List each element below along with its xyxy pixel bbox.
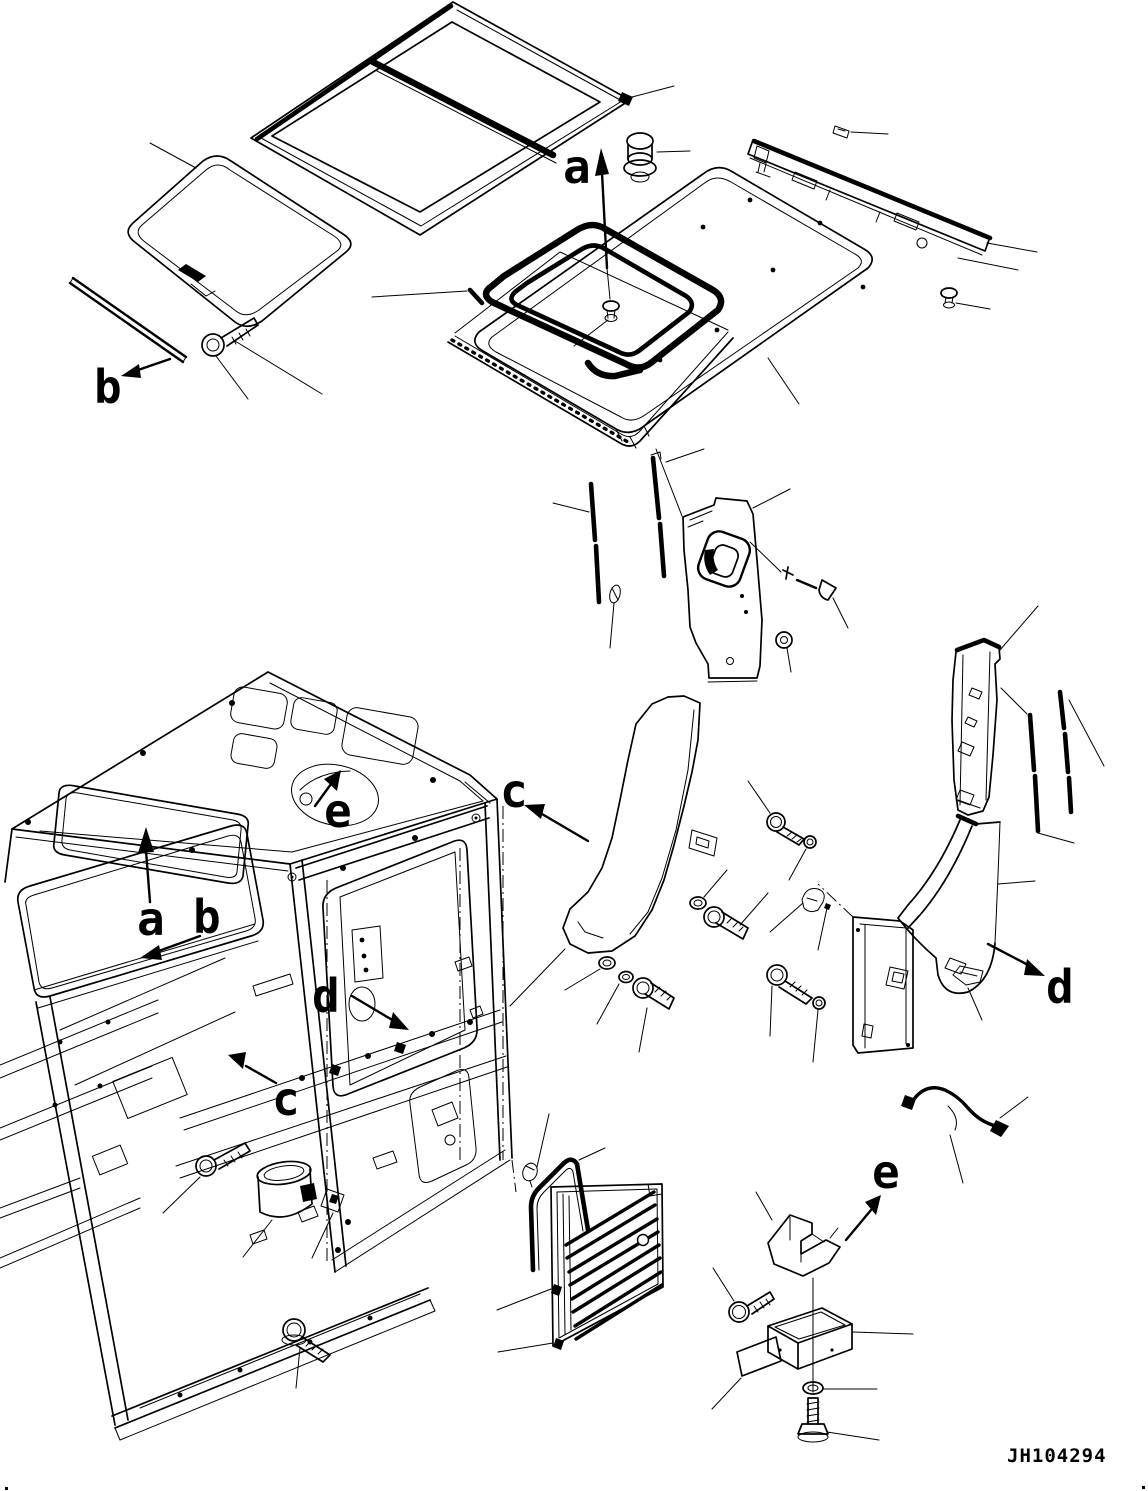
- hook-clip: [770, 888, 831, 950]
- bolt-vertical: [798, 1398, 879, 1442]
- fastener-cluster: [565, 781, 831, 1062]
- tray-assembly: e: [712, 1145, 913, 1442]
- nut: [804, 836, 816, 848]
- bolt: [704, 893, 768, 939]
- grommet: [941, 288, 990, 309]
- clip: [520, 1161, 539, 1183]
- push-pin-round: [776, 632, 792, 672]
- drawing-number: JH104294: [1007, 1445, 1107, 1467]
- sunroof-glass-lid: [128, 156, 351, 326]
- rear-pillar-trim: [952, 606, 1038, 815]
- grab-handle: [253, 974, 293, 996]
- bolt: [633, 978, 674, 1052]
- screw: [163, 1143, 250, 1213]
- label-view-e: e: [872, 1145, 900, 1199]
- louvered-grille-panel: [551, 1184, 663, 1350]
- arrow-b-head: [121, 364, 141, 378]
- bolt: [713, 1268, 774, 1322]
- label-top-b: b: [94, 360, 122, 414]
- clip: [833, 126, 888, 138]
- view-d-callout: d: [953, 944, 1074, 1020]
- sill-bolt: [282, 1319, 330, 1388]
- label-view-d: d: [1046, 960, 1074, 1014]
- parts-diagram-page: b a: [0, 0, 1148, 1491]
- page-dot: [1142, 1486, 1145, 1489]
- grab-handle-recess: [695, 528, 753, 590]
- cup-holder: [243, 1158, 317, 1257]
- rear-quarter-trim: [818, 816, 1035, 1183]
- label-cab-d: d: [312, 969, 340, 1023]
- exploded-parts-drawing: b a: [0, 0, 1148, 1491]
- front-pillar-trim: [656, 449, 848, 682]
- page-dot: [5, 1487, 8, 1490]
- label-cab-c: c: [272, 1072, 300, 1126]
- roof-headliner-panel: [475, 168, 872, 448]
- bolt: [767, 965, 812, 1036]
- arrow-b-shaft: [138, 359, 170, 370]
- rear-seal-strips: [1030, 692, 1104, 843]
- pillar-seal-strips: [553, 449, 704, 648]
- label-view-c: c: [500, 764, 528, 818]
- washer: [803, 1382, 877, 1394]
- vent-grille-group: [497, 1114, 663, 1352]
- bolt: [748, 781, 804, 845]
- sunroof-hatch-and-seal: [372, 225, 733, 446]
- cab-frame: [0, 672, 516, 1440]
- tray-box: [768, 1308, 913, 1369]
- view-c-callout: c: [500, 764, 588, 841]
- hinge-plate: [352, 926, 383, 982]
- bracket: [768, 1215, 840, 1276]
- roof-hatch-frame: [150, 2, 674, 235]
- nut: [813, 997, 825, 1009]
- roof-seal-strip: b: [70, 278, 322, 414]
- label-top-a: a: [563, 140, 591, 194]
- push-pin: [783, 567, 848, 628]
- label-cab-e: e: [324, 784, 352, 838]
- roof-plug: [624, 133, 690, 182]
- cup-holder-group: [163, 1143, 344, 1258]
- wire-harness: [901, 1088, 1028, 1183]
- arrow-a-head: [595, 148, 609, 176]
